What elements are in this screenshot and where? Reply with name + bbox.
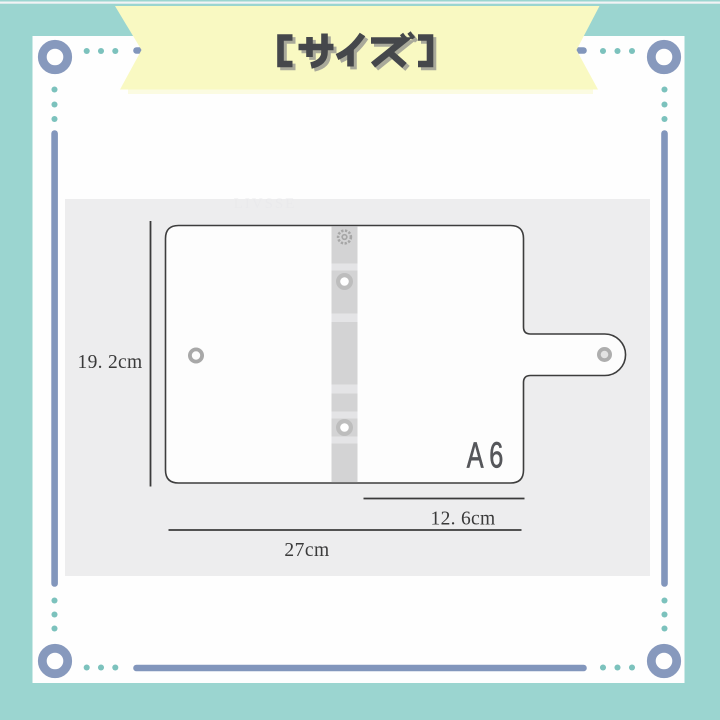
svg-text:A 6: A 6 — [467, 435, 503, 476]
svg-text:27cm: 27cm — [284, 540, 329, 561]
svg-text:19. 2cm: 19. 2cm — [78, 352, 143, 373]
svg-text:LIVSSE: LIVSSE — [234, 196, 297, 212]
svg-text:12. 6cm: 12. 6cm — [431, 509, 496, 530]
